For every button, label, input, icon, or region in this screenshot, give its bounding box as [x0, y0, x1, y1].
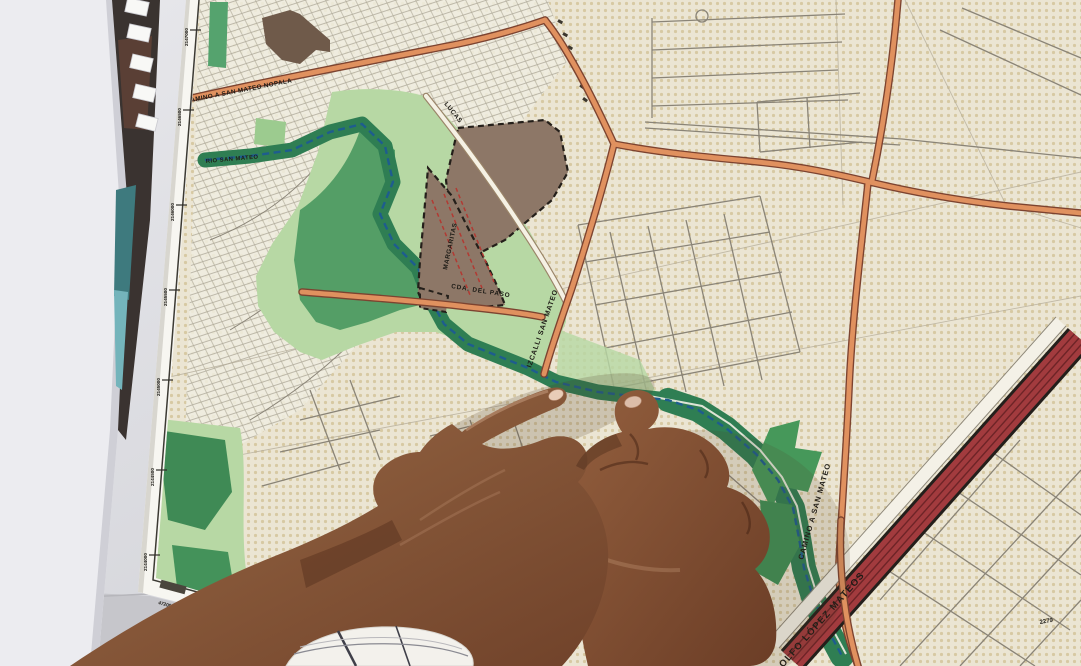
grid-tick: 2147000	[184, 28, 189, 46]
grid-tick: 2144500	[150, 468, 155, 486]
grid-tick: 2145000	[156, 378, 161, 396]
grid-tick: 2144000	[143, 553, 148, 571]
grid-tick: 2146500	[177, 108, 182, 126]
grid-tick: 2146000	[170, 203, 175, 221]
map-photo-scene: CAMINO A SAN MATEO NOPALA RIO SAN MATEO …	[0, 0, 1081, 666]
grid-tick: 2145500	[163, 288, 168, 306]
